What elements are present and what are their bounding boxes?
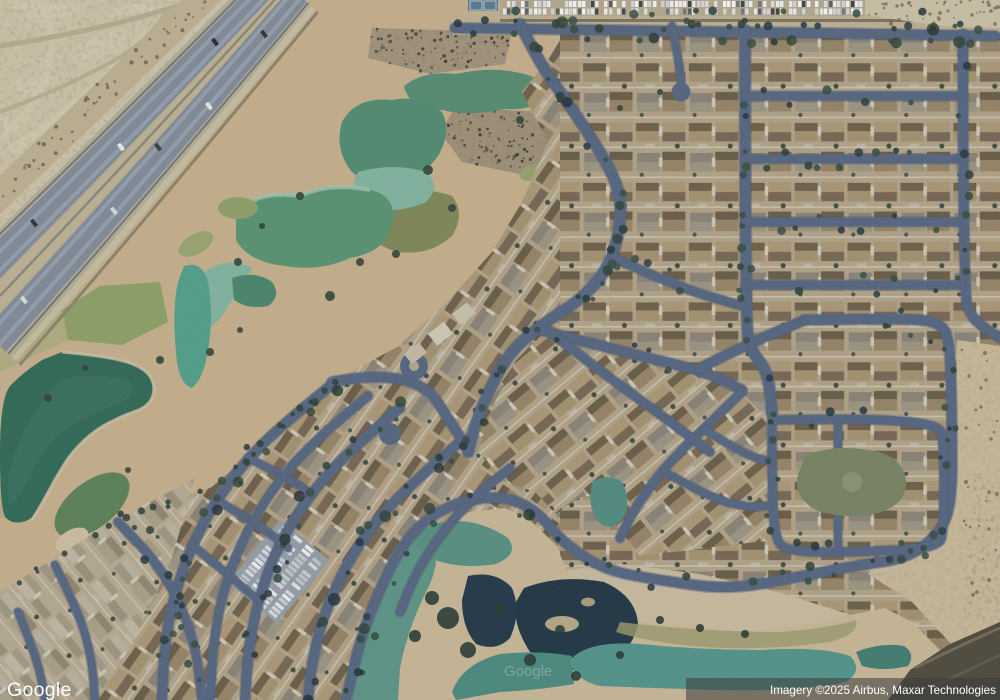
svg-text:Google: Google bbox=[7, 679, 72, 700]
svg-text:Google: Google bbox=[504, 663, 552, 680]
svg-text:Imagery ©2025 Airbus, Maxar Te: Imagery ©2025 Airbus, Maxar Technologies bbox=[770, 684, 996, 697]
